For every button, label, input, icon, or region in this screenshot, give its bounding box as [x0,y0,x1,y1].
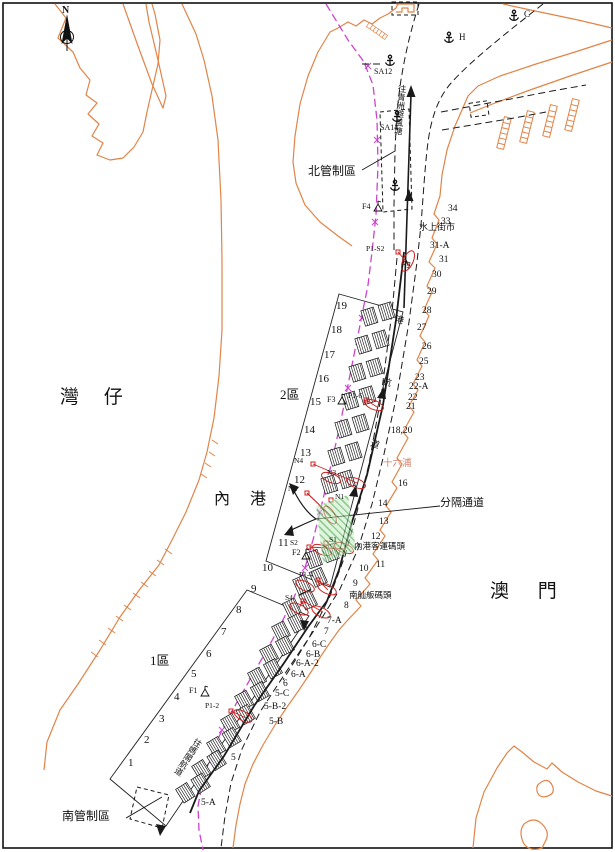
anchor-icon [510,10,519,20]
chart-frame [3,3,612,848]
chart-linework [0,0,615,852]
anchor-icon [445,32,454,42]
north-arrow-icon [61,14,74,51]
buoy-icon [201,686,209,696]
pier-pontoons [176,302,396,803]
fairway-lines [126,94,440,818]
chart-symbols [61,10,519,696]
harbour-chart: N灣 仔內 港澳 門2區1區北管制區南管制區分隔通道水上街市十六浦內港客運碼頭南… [0,0,615,852]
anchor-icon [391,180,400,190]
south-control-zone-box [130,787,169,828]
anchor-icon [386,55,395,65]
buoy-icon [374,201,382,211]
coastlines [44,4,612,849]
channel-dashed-lines [221,4,586,848]
control-zone-boxes [130,2,489,828]
